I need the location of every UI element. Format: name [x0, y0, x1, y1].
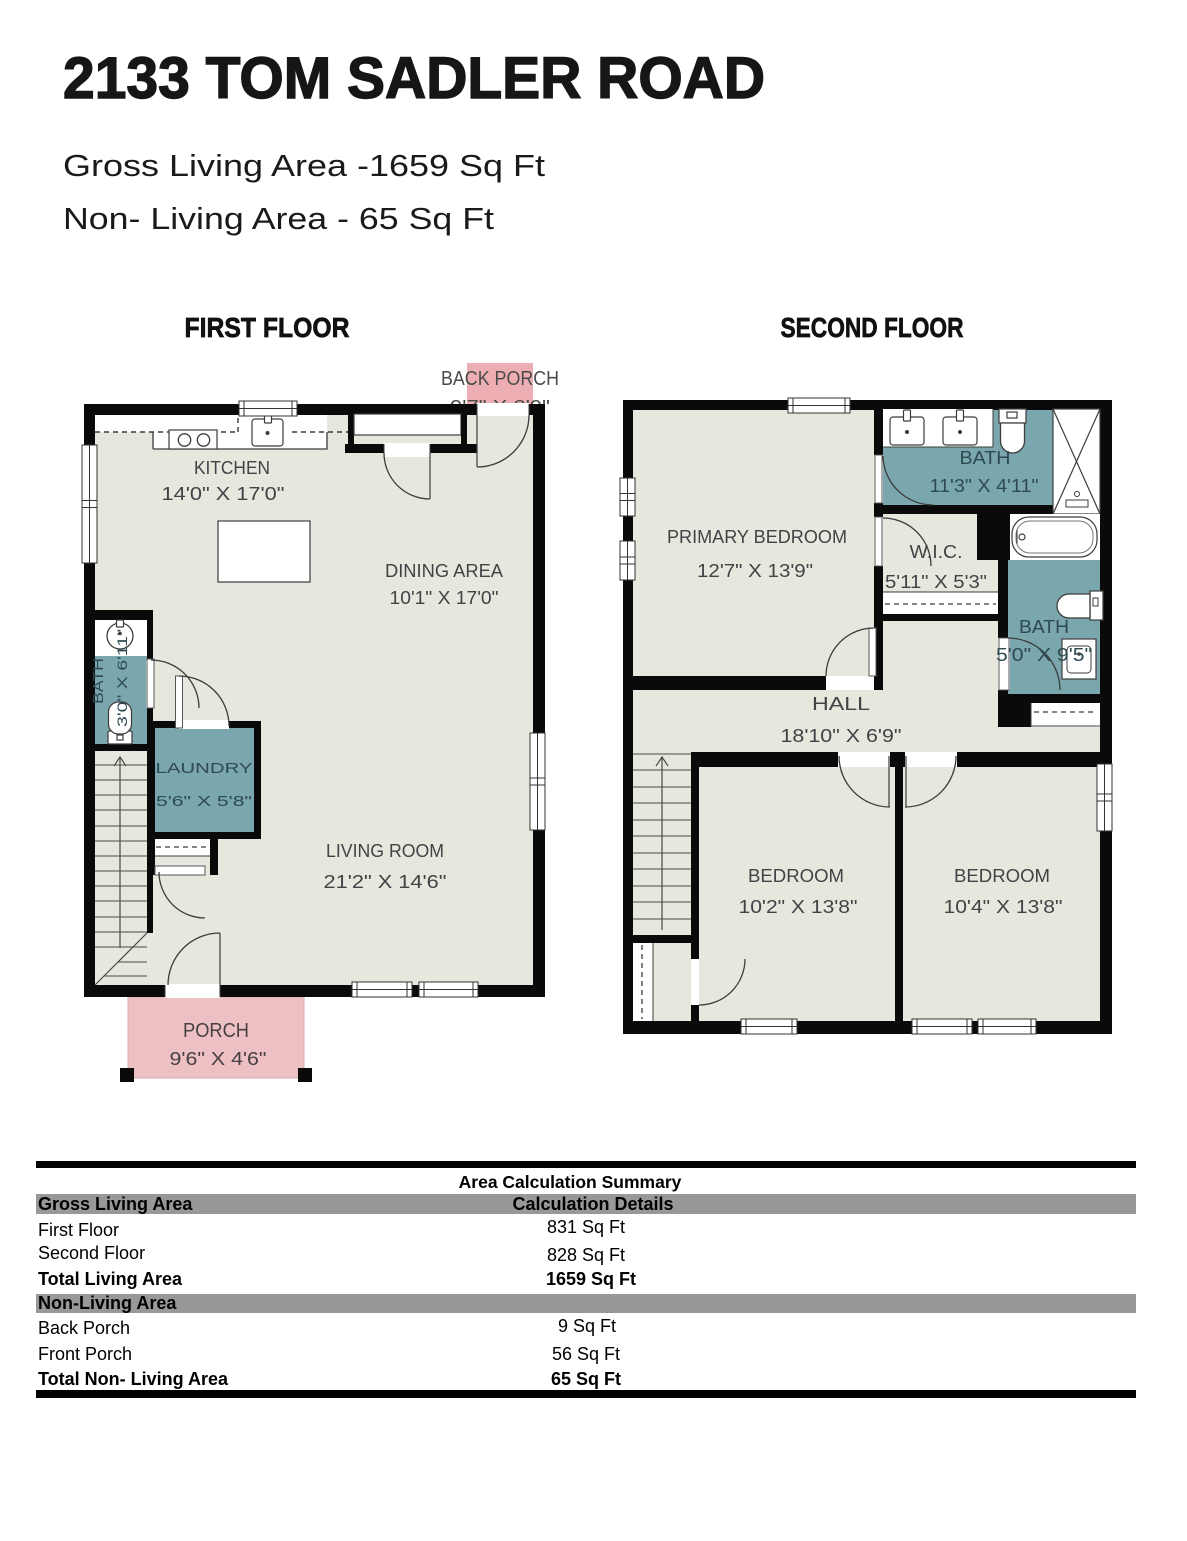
svg-text:10'1" X 17'0": 10'1" X 17'0" — [390, 588, 499, 608]
svg-text:DINING AREA: DINING AREA — [385, 561, 503, 581]
svg-text:Front Porch: Front Porch — [38, 1344, 132, 1364]
svg-text:9'6" X 4'6": 9'6" X 4'6" — [170, 1049, 267, 1069]
svg-text:10'4" X 13'8": 10'4" X 13'8" — [944, 897, 1063, 917]
svg-text:PRIMARY BEDROOM: PRIMARY BEDROOM — [667, 527, 847, 547]
svg-text:LAUNDRY: LAUNDRY — [156, 761, 253, 777]
svg-text:Calculation Details: Calculation Details — [512, 1194, 673, 1214]
svg-text:Area Calculation Summary: Area Calculation Summary — [459, 1172, 682, 1192]
svg-text:BATH: BATH — [960, 448, 1011, 468]
svg-text:Non-Living Area: Non-Living Area — [38, 1293, 177, 1313]
svg-text:Non- Living Area - 65 Sq Ft: Non- Living Area - 65 Sq Ft — [63, 201, 494, 236]
svg-text:11'3" X 4'11": 11'3" X 4'11" — [930, 476, 1039, 496]
svg-text:LIVING ROOM: LIVING ROOM — [326, 841, 444, 861]
svg-text:Gross Living Area -1659 Sq Ft: Gross Living Area -1659 Sq Ft — [63, 148, 545, 183]
svg-text:1659 Sq Ft: 1659 Sq Ft — [546, 1269, 636, 1289]
svg-text:KITCHEN: KITCHEN — [194, 458, 270, 478]
svg-text:Gross Living Area: Gross Living Area — [38, 1194, 193, 1214]
svg-text:12'7" X 13'9": 12'7" X 13'9" — [697, 561, 813, 581]
svg-text:BATH: BATH — [90, 658, 107, 704]
svg-text:21'2" X 14'6": 21'2" X 14'6" — [324, 872, 447, 892]
svg-text:2133 TOM SADLER ROAD: 2133 TOM SADLER ROAD — [63, 46, 765, 111]
svg-text:Total Living Area: Total Living Area — [38, 1269, 183, 1289]
svg-text:Back Porch: Back Porch — [38, 1318, 130, 1338]
svg-text:HALL: HALL — [812, 694, 870, 714]
svg-text:BEDROOM: BEDROOM — [954, 866, 1050, 886]
svg-text:14'0" X 17'0": 14'0" X 17'0" — [162, 484, 285, 504]
svg-text:831 Sq Ft: 831 Sq Ft — [547, 1217, 625, 1237]
svg-text:5'6" X 5'8": 5'6" X 5'8" — [156, 794, 252, 810]
svg-text:5'11" X 5'3": 5'11" X 5'3" — [885, 572, 987, 592]
svg-text:9 Sq Ft: 9 Sq Ft — [558, 1316, 616, 1336]
svg-text:65 Sq Ft: 65 Sq Ft — [551, 1369, 621, 1389]
svg-text:BACK PORCH: BACK PORCH — [441, 368, 559, 390]
svg-text:Total Non- Living Area: Total Non- Living Area — [38, 1369, 229, 1389]
svg-text:828 Sq Ft: 828 Sq Ft — [547, 1245, 625, 1265]
svg-text:W.I.C.: W.I.C. — [910, 542, 963, 562]
svg-text:PORCH: PORCH — [183, 1020, 249, 1042]
svg-text:18'10" X 6'9": 18'10" X 6'9" — [781, 726, 902, 746]
svg-text:FIRST FLOOR: FIRST FLOOR — [185, 312, 350, 343]
svg-text:BEDROOM: BEDROOM — [748, 866, 844, 886]
svg-text:BATH: BATH — [1019, 617, 1069, 637]
svg-text:Second Floor: Second Floor — [38, 1243, 145, 1263]
svg-text:First Floor: First Floor — [38, 1220, 119, 1240]
svg-text:SECOND FLOOR: SECOND FLOOR — [781, 312, 964, 343]
svg-text:56 Sq Ft: 56 Sq Ft — [552, 1344, 620, 1364]
svg-text:5'0" X 9'5": 5'0" X 9'5" — [996, 645, 1092, 665]
svg-text:10'2" X 13'8": 10'2" X 13'8" — [739, 897, 858, 917]
svg-text:3'0" X 6'11": 3'0" X 6'11" — [114, 629, 130, 727]
